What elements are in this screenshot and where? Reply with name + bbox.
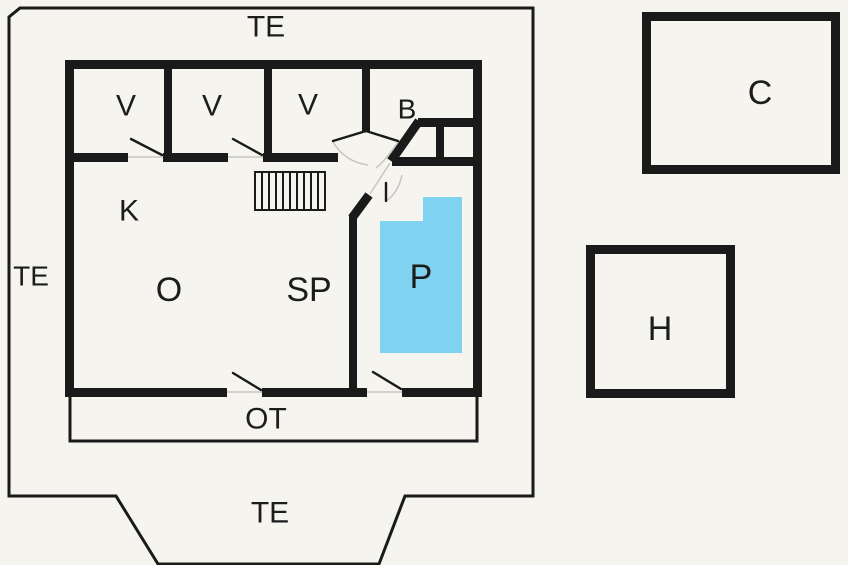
- door-swing-icons: [128, 131, 402, 392]
- label-porch-ot: OT: [245, 403, 287, 436]
- stairs-icon: [255, 172, 325, 210]
- building-c-outline: [647, 17, 836, 170]
- wall-segment: [65, 60, 482, 69]
- door-leaf: [333, 131, 366, 141]
- floor-plan-drawing: TE TE TE OT V V V B K O SP P C H: [0, 0, 848, 565]
- wall-segment: [262, 388, 367, 397]
- wall-segment: [65, 60, 74, 397]
- label-terrace-bottom: TE: [251, 497, 289, 530]
- wall-segment: [349, 214, 357, 388]
- label-terrace-top: TE: [247, 11, 285, 44]
- label-room-k: K: [119, 195, 139, 228]
- wall-segment: [362, 69, 370, 131]
- label-room-o: O: [156, 271, 182, 309]
- wall-segment: [164, 69, 172, 162]
- floor-plan-page: TE TE TE OT V V V B K O SP P C H: [0, 0, 848, 565]
- door-leaf: [233, 139, 262, 155]
- wall-segment: [263, 153, 338, 162]
- door-leaf: [233, 373, 261, 390]
- label-room-b: B: [398, 94, 417, 125]
- wall-segment: [264, 69, 272, 162]
- label-room-v1: V: [116, 90, 136, 123]
- label-room-sp: SP: [286, 271, 331, 309]
- label-building-c: C: [748, 74, 773, 112]
- wall-segment: [436, 127, 444, 157]
- wall-segment: [163, 153, 228, 162]
- door-leaf: [366, 131, 398, 141]
- label-building-h: H: [648, 310, 673, 348]
- wall-segment: [74, 153, 128, 162]
- wall-segment: [473, 60, 482, 397]
- label-room-v3: V: [298, 89, 318, 122]
- label-room-v2: V: [202, 90, 222, 123]
- diagonal-wall-lower: [352, 195, 369, 218]
- wall-segment: [418, 118, 473, 127]
- label-terrace-left: TE: [13, 261, 49, 292]
- wall-segment: [402, 388, 482, 397]
- door-leaf: [373, 372, 401, 389]
- wall-segment: [65, 388, 227, 397]
- wall-segment: [392, 157, 473, 166]
- label-room-p: P: [410, 258, 433, 296]
- door-leaf: [131, 139, 162, 155]
